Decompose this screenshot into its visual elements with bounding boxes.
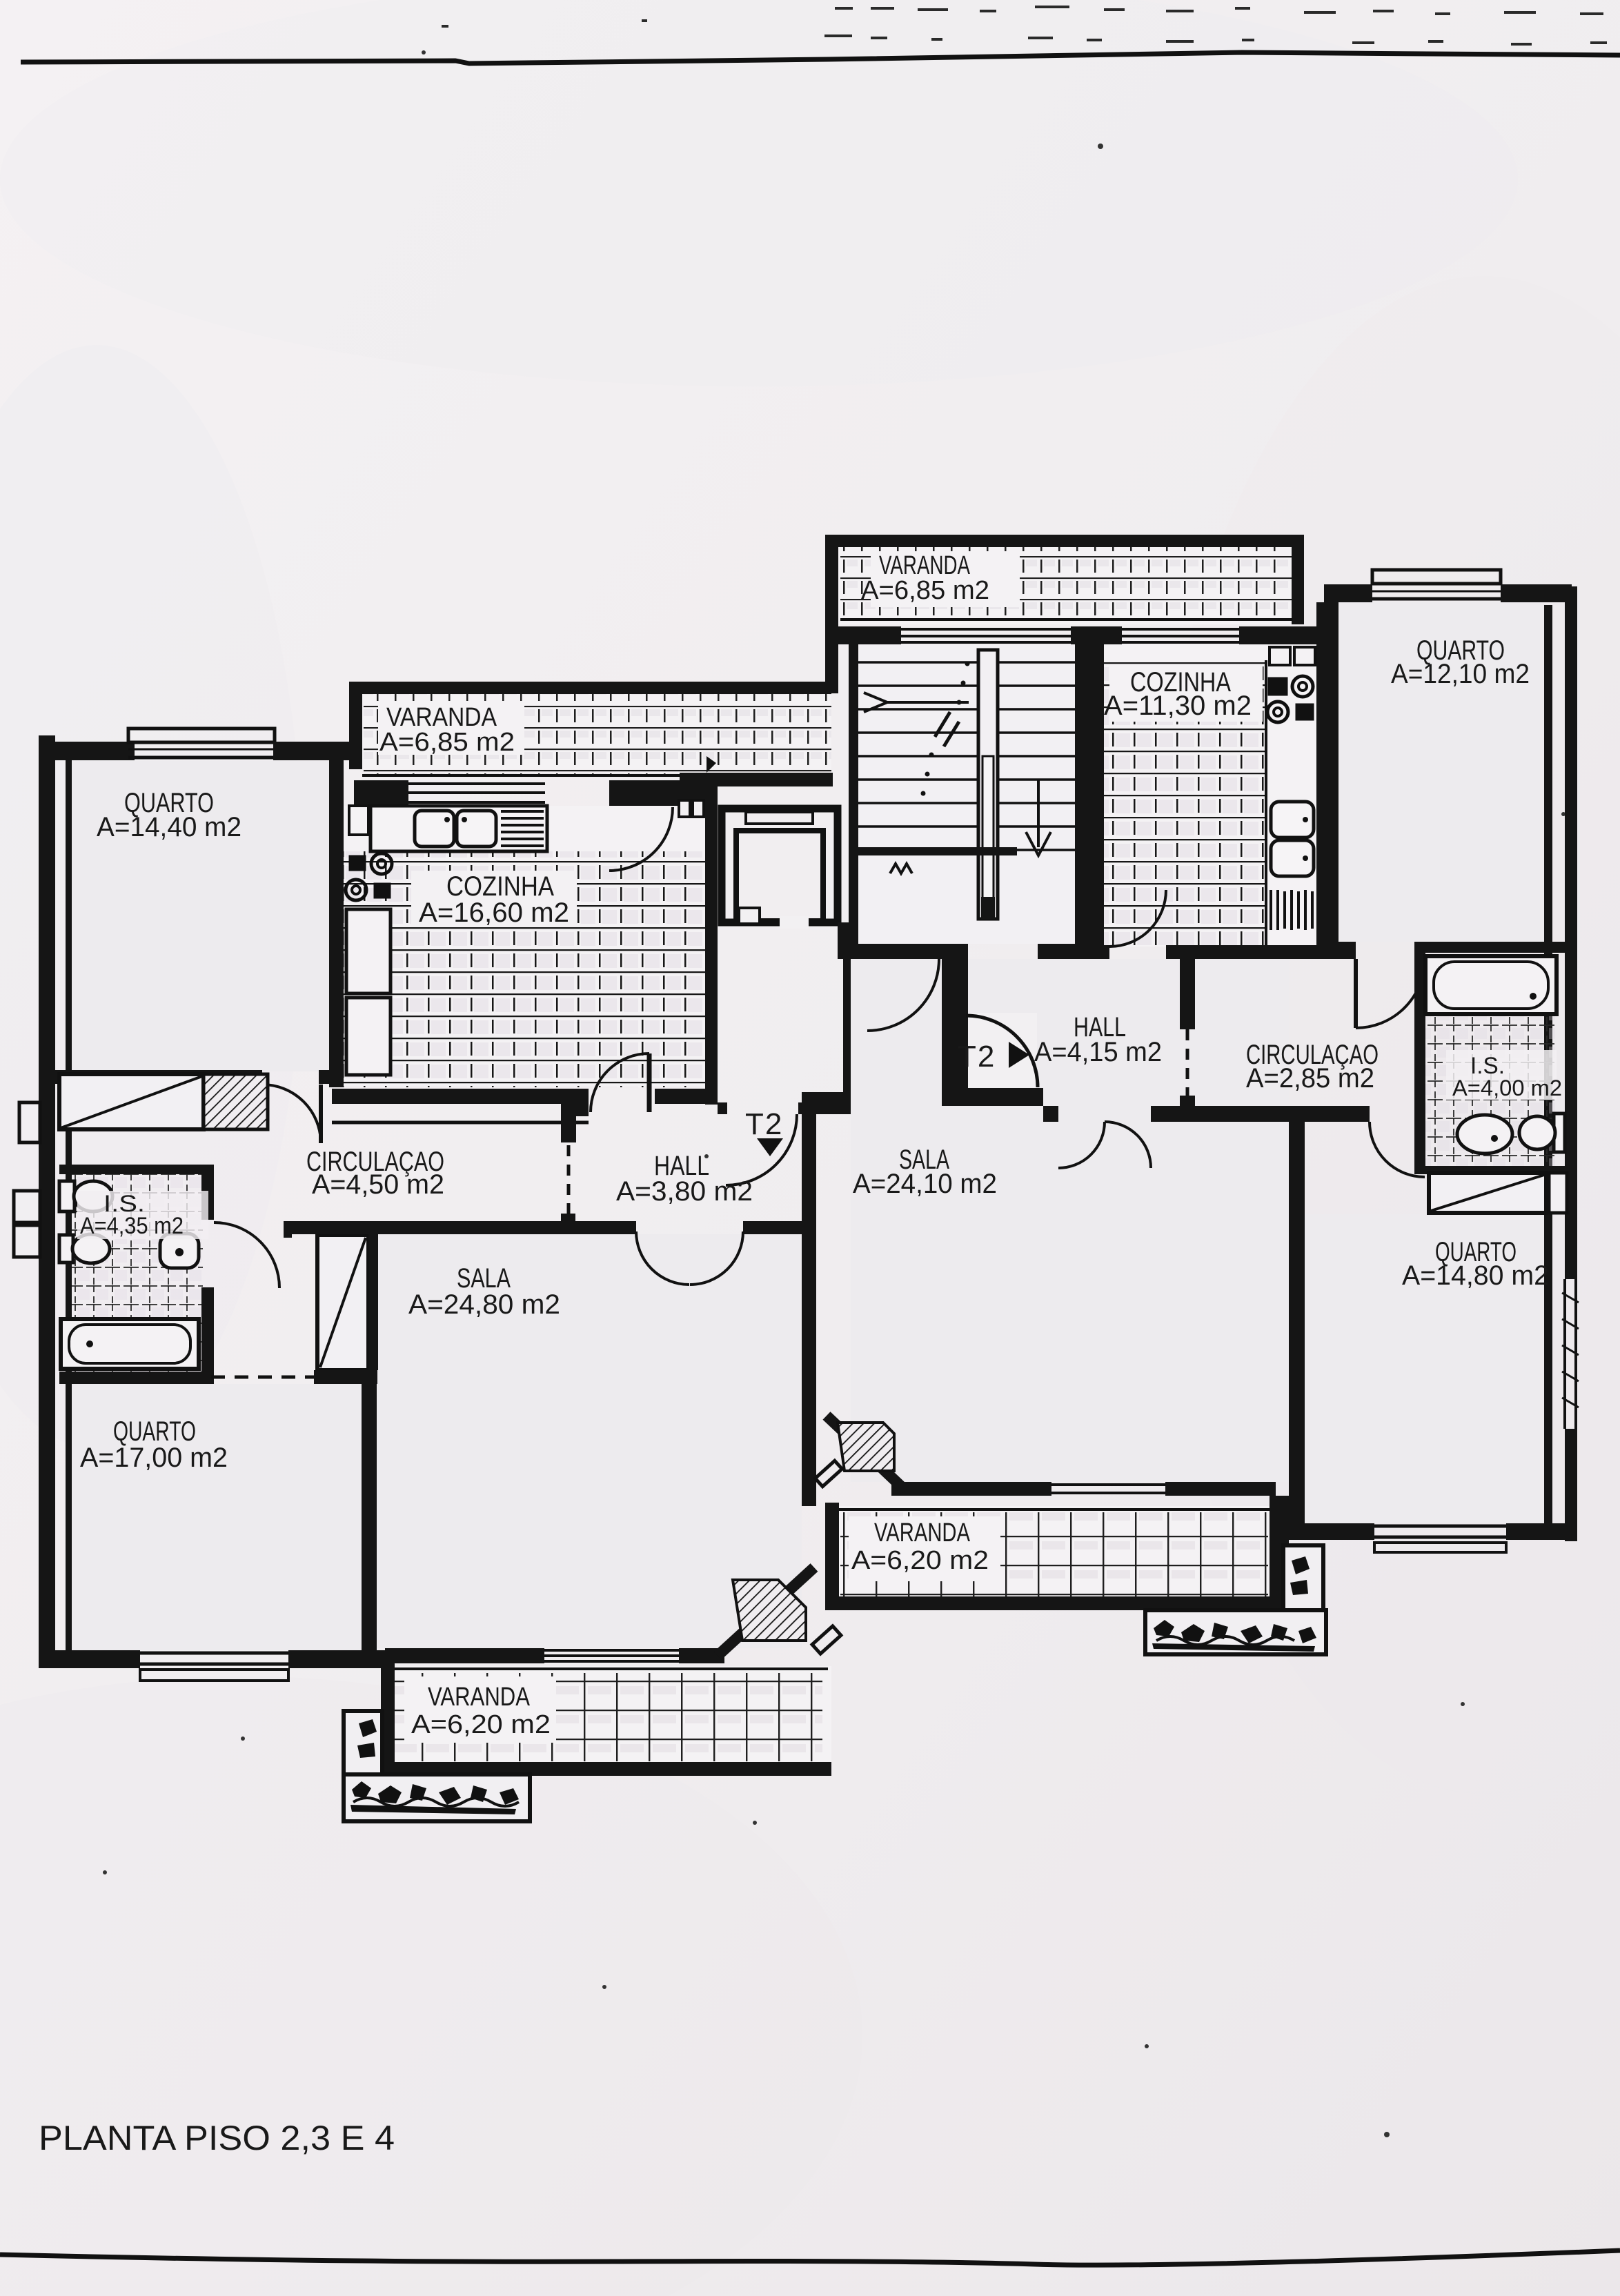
svg-text:A=6,20 m2: A=6,20 m2 (851, 1546, 989, 1575)
svg-text:A=6,20 m2: A=6,20 m2 (411, 1710, 551, 1739)
svg-text:A=4,35 m2: A=4,35 m2 (80, 1213, 184, 1239)
svg-text:T2: T2 (745, 1107, 783, 1141)
svg-text:VARANDA: VARANDA (428, 1683, 531, 1712)
svg-text:A=3,80 m2: A=3,80 m2 (616, 1176, 753, 1207)
svg-text:A=4,50 m2: A=4,50 m2 (312, 1169, 444, 1200)
svg-text:A=4,00 m2: A=4,00 m2 (1452, 1076, 1562, 1100)
svg-text:T2: T2 (958, 1040, 996, 1073)
svg-text:A=11,30 m2: A=11,30 m2 (1104, 691, 1252, 721)
svg-text:A=24,10 m2: A=24,10 m2 (853, 1169, 997, 1199)
svg-text:A=12,10 m2: A=12,10 m2 (1391, 659, 1530, 689)
svg-text:A=17,00 m2: A=17,00 m2 (80, 1443, 228, 1473)
svg-text:VARANDA: VARANDA (874, 1518, 971, 1547)
svg-text:A=2,85 m2: A=2,85 m2 (1246, 1063, 1374, 1093)
svg-text:A=6,85 m2: A=6,85 m2 (861, 576, 989, 605)
svg-text:A=4,15 m2: A=4,15 m2 (1034, 1037, 1162, 1067)
svg-text:PLANTA PISO 2,3 E 4: PLANTA PISO 2,3 E 4 (39, 2119, 395, 2157)
svg-text:A=16,60 m2: A=16,60 m2 (419, 898, 569, 928)
svg-text:A=14,40 m2: A=14,40 m2 (97, 812, 241, 842)
svg-text:A=6,85 m2: A=6,85 m2 (379, 728, 515, 757)
svg-text:A=24,80 m2: A=24,80 m2 (408, 1289, 560, 1320)
svg-text:A=14,80 m2: A=14,80 m2 (1402, 1260, 1549, 1291)
